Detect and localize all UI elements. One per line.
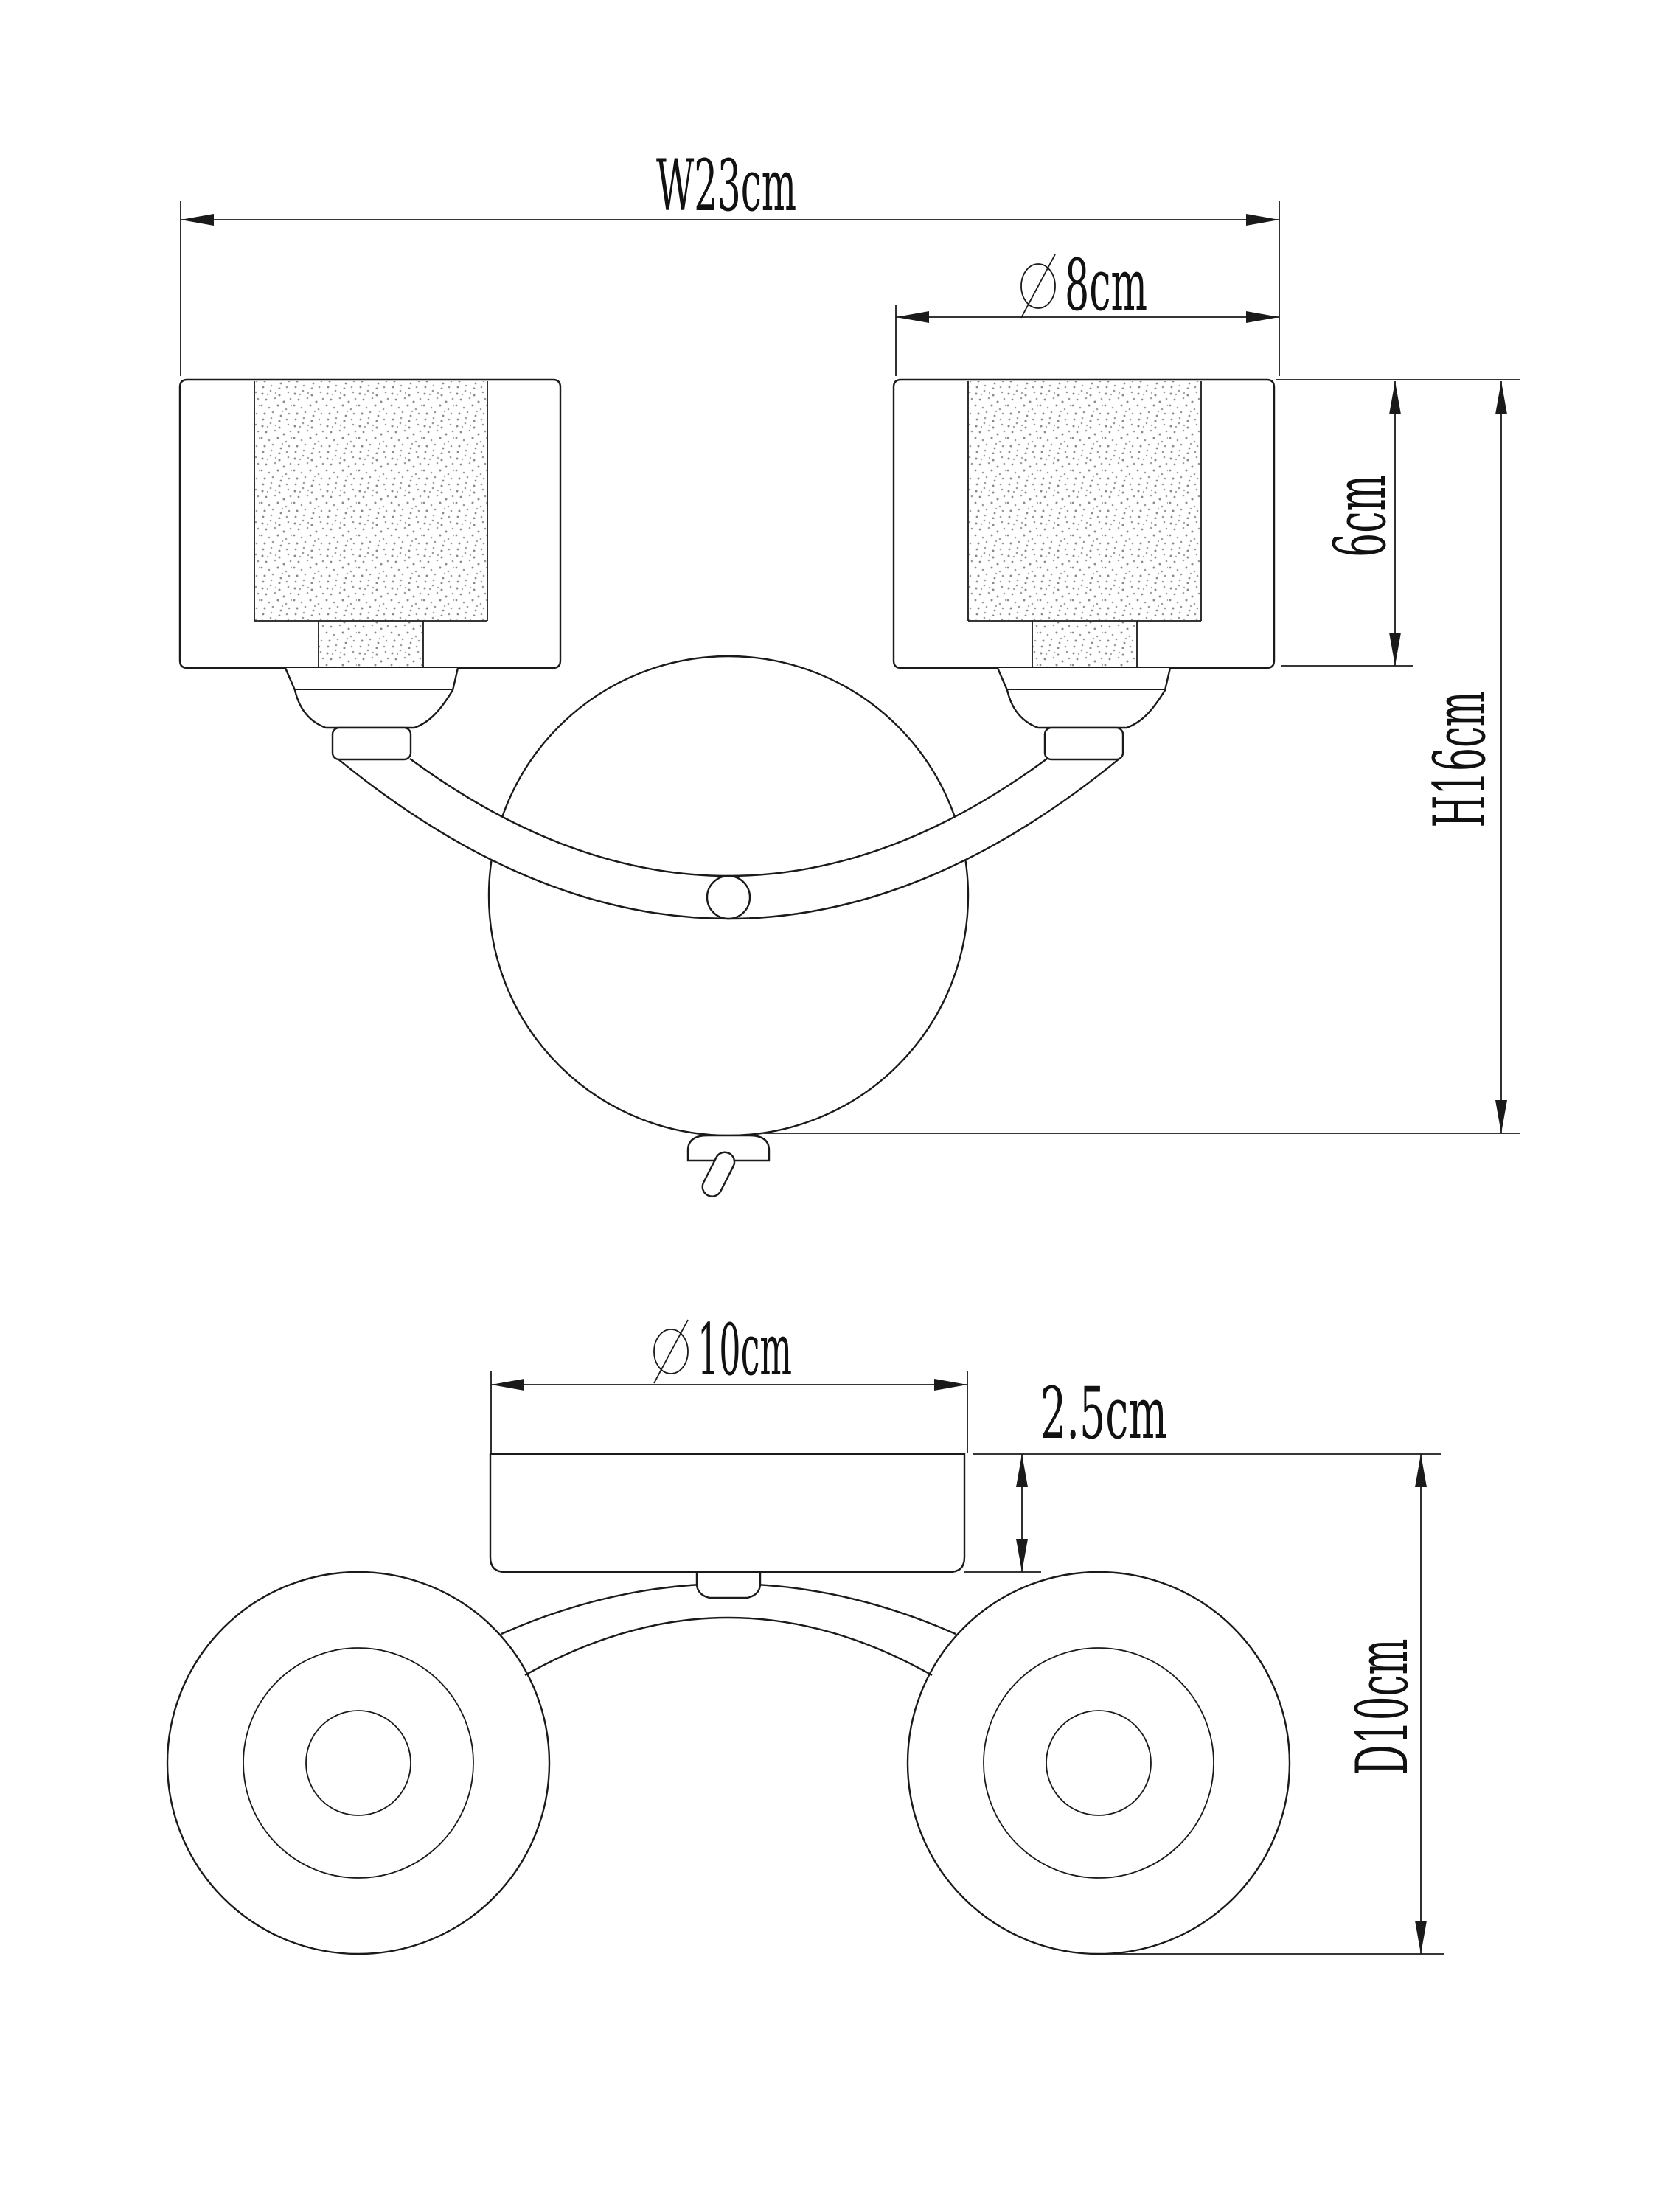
wall-plate-bottom bbox=[490, 1454, 964, 1572]
diameter-symbol bbox=[1021, 254, 1055, 318]
left-socket bbox=[285, 668, 458, 759]
d8-label: 8cm bbox=[1065, 244, 1147, 327]
right-shade-outer-circle bbox=[908, 1572, 1290, 1954]
dd10-label: D10cm bbox=[1341, 1639, 1424, 1775]
dim-plate-diameter-10cm: 10cm bbox=[491, 1309, 967, 1453]
left-shade bbox=[180, 380, 560, 668]
left-shade-middle-circle bbox=[243, 1648, 473, 1878]
d8-arrow-right bbox=[1246, 311, 1279, 323]
h16-arrow-bottom bbox=[1495, 1100, 1507, 1133]
left-socket-neck bbox=[333, 728, 411, 759]
left-shade-bottom bbox=[167, 1572, 549, 1954]
technical-drawing-page: W23cm 8cm 6cm bbox=[0, 0, 1659, 2212]
left-shade-inner-circle bbox=[306, 1711, 411, 1815]
w23-arrow-left bbox=[181, 214, 214, 226]
left-shade-glass-speckle bbox=[255, 381, 487, 620]
d10-arrow-left bbox=[491, 1379, 524, 1391]
w23-arrow-right bbox=[1246, 214, 1279, 226]
h16-label: H16cm bbox=[1419, 692, 1501, 828]
h6-arrow-bottom bbox=[1389, 633, 1401, 666]
d8-arrow-left bbox=[896, 311, 929, 323]
h16-arrow-top bbox=[1495, 381, 1507, 414]
right-shade-middle-circle bbox=[984, 1648, 1214, 1878]
right-socket bbox=[998, 668, 1170, 759]
left-glass-strip-speckle bbox=[319, 622, 422, 667]
drawing-canvas: W23cm 8cm 6cm bbox=[0, 0, 1659, 2212]
right-shade-glass-speckle bbox=[969, 381, 1200, 620]
dim-shade-diameter-8cm: 8cm bbox=[896, 244, 1279, 376]
right-shade bbox=[894, 380, 1274, 668]
arm-bottom-lower-edge bbox=[525, 1618, 932, 1675]
center-knob bbox=[707, 876, 750, 919]
right-shade-bottom bbox=[908, 1572, 1290, 1954]
h6-arrow-top bbox=[1389, 381, 1401, 414]
dd10-arrow-bottom bbox=[1415, 1921, 1427, 1954]
h6-label: 6cm bbox=[1319, 475, 1402, 557]
right-shade-inner-circle bbox=[1046, 1711, 1151, 1815]
t25-label: 2.5cm bbox=[1040, 1372, 1167, 1455]
bottom-view: 10cm 2.5cm D10cm bbox=[167, 1309, 1444, 1954]
right-socket-flare bbox=[1007, 690, 1165, 728]
front-view: W23cm 8cm 6cm bbox=[180, 145, 1520, 1200]
w23-label: W23cm bbox=[656, 145, 796, 227]
toggle-switch bbox=[688, 1135, 769, 1200]
left-socket-flare bbox=[295, 690, 453, 728]
t25-arrow-top bbox=[1016, 1454, 1028, 1487]
right-glass-strip-speckle bbox=[1033, 622, 1136, 667]
left-shade-outer-circle bbox=[167, 1572, 549, 1954]
dim-depth-d10: D10cm bbox=[1091, 1454, 1444, 1954]
right-socket-neck bbox=[1045, 728, 1123, 759]
dim-plate-thickness-25: 2.5cm bbox=[964, 1372, 1441, 1572]
left-socket-collar bbox=[285, 668, 458, 690]
right-socket-collar bbox=[998, 668, 1170, 690]
center-stub bbox=[697, 1572, 760, 1598]
dim-shade-height-6cm: 6cm bbox=[1276, 380, 1520, 666]
d10-arrow-right bbox=[934, 1379, 967, 1391]
dd10-arrow-top bbox=[1415, 1454, 1427, 1487]
diameter-symbol bbox=[654, 1320, 688, 1383]
d10-label: 10cm bbox=[698, 1309, 792, 1391]
t25-arrow-bottom bbox=[1016, 1539, 1028, 1572]
